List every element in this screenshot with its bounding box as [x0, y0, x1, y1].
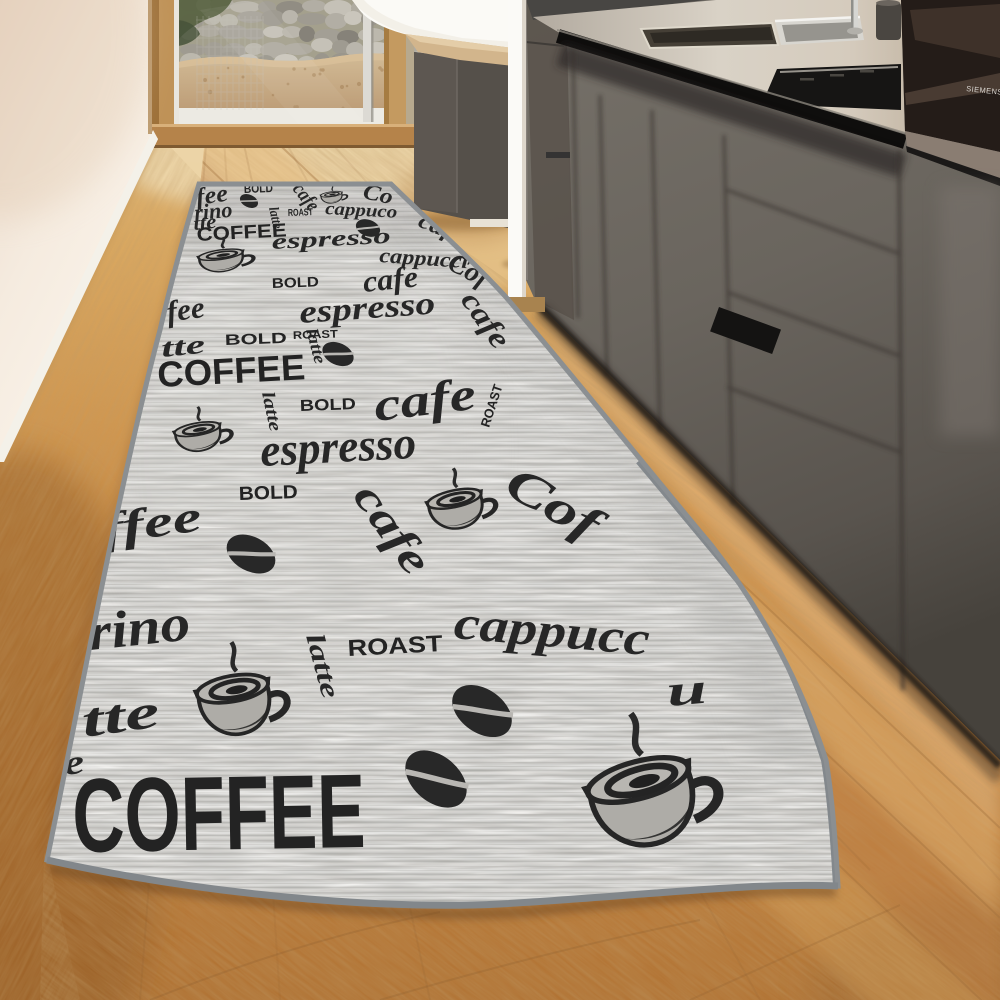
svg-text:BOLD: BOLD — [225, 330, 288, 349]
svg-text:COFFEE: COFFEE — [71, 753, 366, 875]
svg-text:tte: tte — [78, 685, 163, 748]
svg-text:u: u — [665, 664, 709, 716]
svg-text:BOLD: BOLD — [238, 482, 298, 505]
svg-text:cappuco: cappuco — [325, 198, 398, 222]
svg-text:BOLD: BOLD — [272, 273, 320, 291]
svg-text:rino: rino — [85, 595, 192, 662]
svg-text:tte: tte — [160, 330, 207, 363]
svg-text:BOLD: BOLD — [300, 396, 357, 415]
svg-text:ROAST: ROAST — [347, 630, 443, 661]
svg-text:fee: fee — [164, 291, 206, 329]
svg-text:ROAST: ROAST — [288, 207, 313, 219]
svg-text:ROAST: ROAST — [293, 328, 339, 342]
